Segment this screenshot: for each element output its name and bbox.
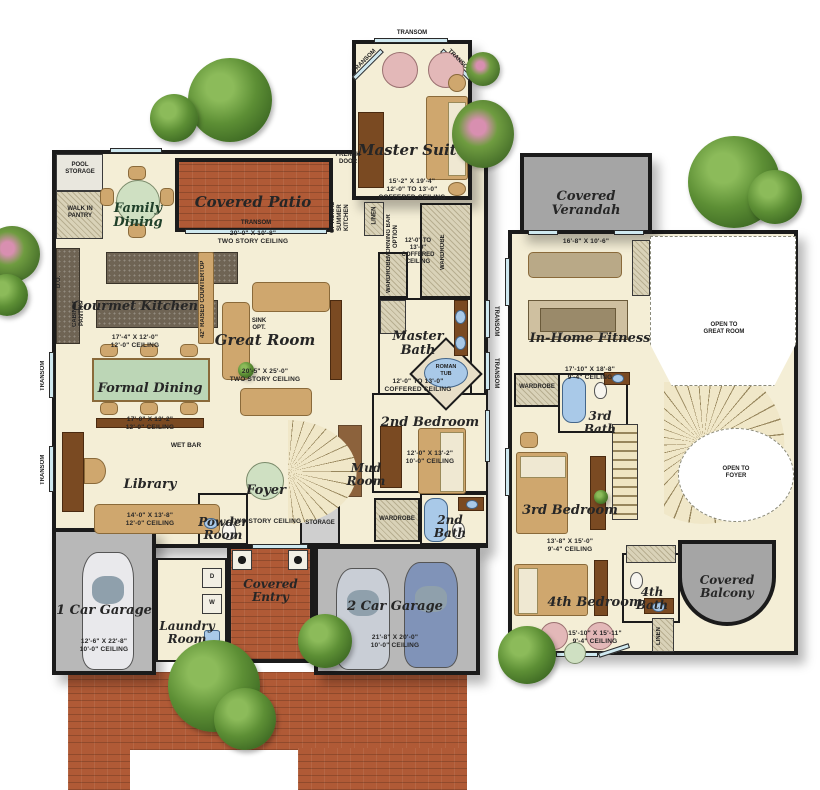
bath-3-tub xyxy=(562,377,586,423)
powder-sink xyxy=(204,518,218,529)
bath-2-tub xyxy=(424,498,448,542)
dining-chair xyxy=(128,166,146,180)
sink xyxy=(455,336,466,350)
transom-label: TRANSOM xyxy=(492,302,499,340)
driveway-stub-right xyxy=(298,748,467,790)
tree xyxy=(748,170,802,224)
window xyxy=(110,148,162,153)
car-glass xyxy=(415,586,447,612)
dining-chair xyxy=(180,344,198,357)
window xyxy=(485,410,490,462)
dining-chair xyxy=(128,224,146,238)
linen-closet-2-region xyxy=(652,618,674,652)
library-chair xyxy=(84,458,106,484)
kitchen-island xyxy=(106,252,238,284)
plant xyxy=(238,362,254,378)
car-glass xyxy=(347,590,379,616)
window xyxy=(49,352,54,398)
bath-4-shower xyxy=(626,545,676,563)
transom-label: TRANSOM xyxy=(492,354,499,392)
transom-label: TRANSOM xyxy=(384,30,440,37)
window xyxy=(614,230,644,235)
sofa xyxy=(252,282,330,312)
library-desk xyxy=(62,432,84,512)
tree xyxy=(214,688,276,750)
dining-chair xyxy=(100,344,118,357)
bedroom-4-table xyxy=(564,642,586,664)
sofa xyxy=(240,388,312,416)
tree xyxy=(150,94,198,142)
tree xyxy=(0,274,28,316)
linen-closet-region xyxy=(364,202,384,236)
sink xyxy=(652,602,665,612)
dining-chair xyxy=(140,344,158,357)
window xyxy=(485,352,490,390)
bedroom-4-pillows xyxy=(518,568,538,614)
window xyxy=(374,38,448,43)
bedroom-2-pillows xyxy=(440,432,464,492)
fitness-shelf xyxy=(632,240,650,296)
kitchen-counter-left xyxy=(56,248,80,344)
window xyxy=(252,544,308,549)
floor-plan-canvas: Master Suite 15'-2" X 19'-4" 12'-0" TO 1… xyxy=(0,0,820,790)
transom-label: TRANSOM xyxy=(40,450,47,490)
dryer-unit xyxy=(202,568,222,588)
entry-column xyxy=(288,550,308,570)
dining-chair xyxy=(100,188,114,206)
flower-bush xyxy=(452,100,514,168)
bedroom-2-wardrobe-region xyxy=(374,498,420,542)
straight-staircase xyxy=(612,424,638,520)
toilet xyxy=(222,522,236,540)
covered-verandah-region xyxy=(520,153,652,234)
nightstand xyxy=(448,74,466,92)
toilet xyxy=(630,572,643,589)
dining-chair xyxy=(140,402,158,415)
raised-countertop xyxy=(198,252,214,344)
car-blue xyxy=(404,562,458,668)
dining-chair xyxy=(160,188,174,206)
tree xyxy=(298,614,352,668)
open-to-great-room-void xyxy=(650,236,796,386)
nightstand xyxy=(448,182,466,196)
window xyxy=(505,448,510,496)
covered-patio-region xyxy=(175,158,333,232)
bedroom-3-pillows xyxy=(520,456,566,478)
car-glass xyxy=(92,576,124,604)
sink xyxy=(466,500,478,509)
walk-in-pantry-region xyxy=(56,191,103,239)
dining-chair xyxy=(100,402,118,415)
window xyxy=(49,446,54,492)
sink xyxy=(612,374,624,383)
roman-tub xyxy=(424,358,468,388)
bedroom-4-chair xyxy=(586,622,614,650)
master-wardrobe-region xyxy=(420,203,472,298)
sideboard xyxy=(96,418,204,428)
sink xyxy=(455,310,466,324)
formal-dining-table xyxy=(92,358,210,402)
driveway-stub-left xyxy=(68,748,130,790)
transom-label: TRANSOM xyxy=(40,356,47,396)
bedroom-2-dresser xyxy=(380,426,402,488)
washer-unit xyxy=(202,594,222,614)
tree xyxy=(188,58,272,142)
window xyxy=(528,230,558,235)
toilet xyxy=(452,522,465,539)
entry-column xyxy=(232,550,252,570)
pool-storage-region xyxy=(56,154,103,191)
bedroom-3-wardrobe-region xyxy=(514,373,560,407)
wardrobe-2-region xyxy=(378,252,408,298)
window xyxy=(485,300,490,338)
tree xyxy=(498,626,556,684)
bedroom-4-dresser xyxy=(594,560,608,616)
window xyxy=(505,258,510,306)
car-white xyxy=(82,552,134,670)
master-shower xyxy=(380,300,406,334)
treadmill-belt xyxy=(540,308,616,332)
library-sofa xyxy=(94,504,220,534)
plant xyxy=(594,490,608,504)
master-chair xyxy=(382,52,418,88)
nightstand xyxy=(520,432,538,448)
family-dining-table xyxy=(116,180,160,224)
patio-transom-window xyxy=(185,229,327,234)
dining-chair xyxy=(180,402,198,415)
master-bench xyxy=(358,112,384,188)
flower-bush xyxy=(466,52,500,86)
fitness-machine xyxy=(528,252,622,278)
open-to-foyer-void xyxy=(678,428,794,522)
foyer-table xyxy=(246,462,284,500)
media-console xyxy=(330,300,342,380)
